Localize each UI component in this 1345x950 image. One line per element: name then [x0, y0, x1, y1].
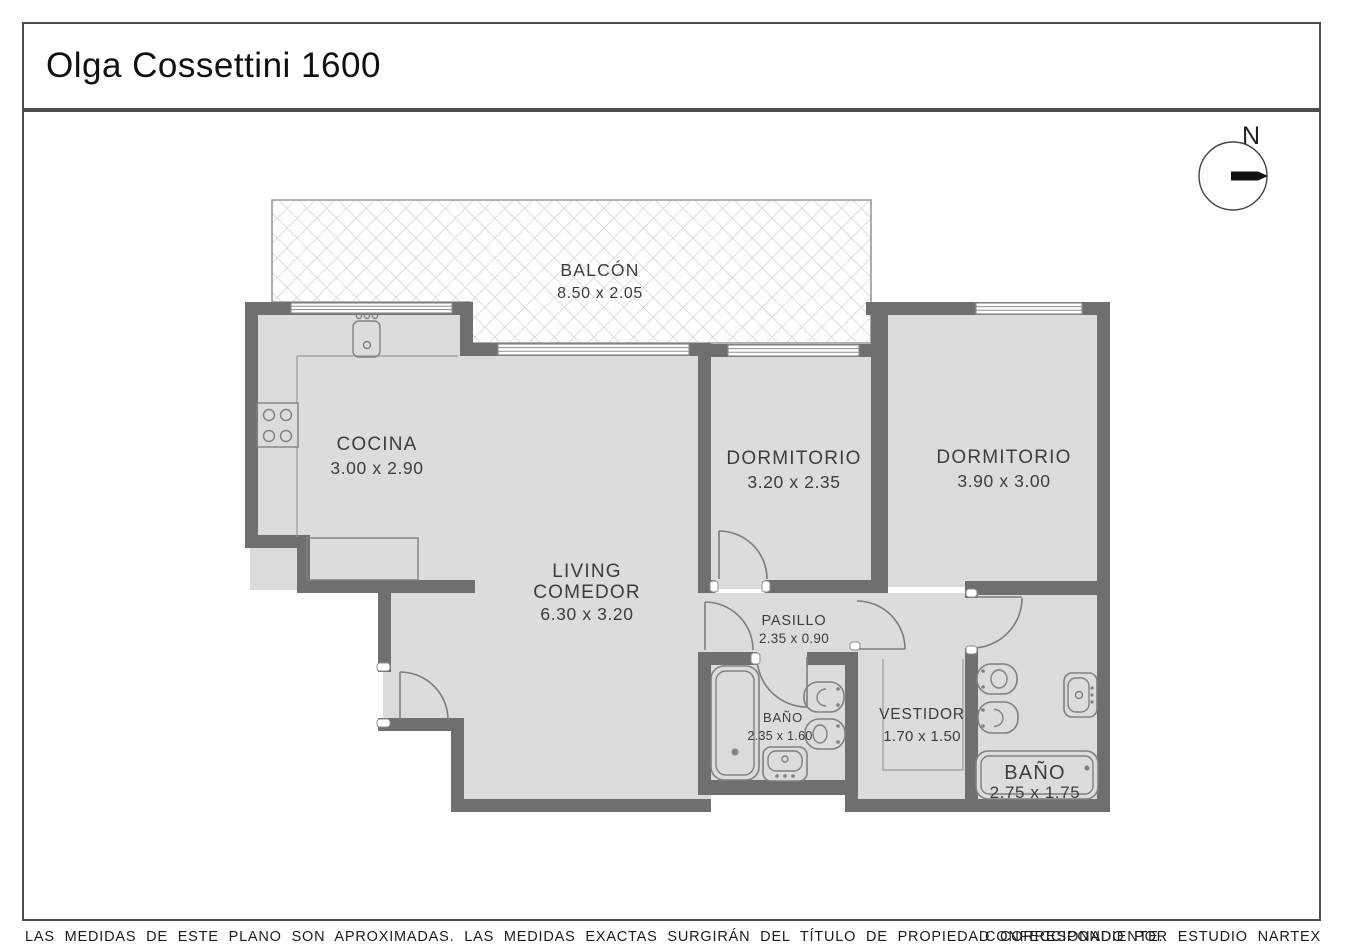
toilet — [978, 702, 1018, 733]
svg-text:DORMITORIO: DORMITORIO — [726, 448, 861, 469]
svg-text:2.35 x 1.60: 2.35 x 1.60 — [747, 729, 812, 743]
compass: N — [1199, 122, 1268, 210]
floorplan-page: Olga Cossettini 1600 — [0, 0, 1345, 950]
sink — [763, 747, 807, 781]
svg-text:BAÑO: BAÑO — [1004, 760, 1065, 784]
studio-credit: CONFECCIONADO POR ESTUDIO NARTEX — [985, 929, 1321, 945]
bedroom1-window — [728, 345, 859, 356]
svg-text:VESTIDOR: VESTIDOR — [879, 706, 965, 723]
svg-text:3.20 x 2.35: 3.20 x 2.35 — [747, 472, 840, 492]
compass-north-label: N — [1242, 122, 1260, 150]
svg-text:LIVING: LIVING — [552, 561, 622, 582]
svg-text:1.70 x 1.50: 1.70 x 1.50 — [883, 728, 961, 745]
svg-text:2.35 x 0.90: 2.35 x 0.90 — [759, 631, 829, 646]
svg-text:8.50 x 2.05: 8.50 x 2.05 — [557, 285, 643, 302]
svg-text:BAÑO: BAÑO — [763, 710, 803, 725]
svg-text:6.30 x 3.20: 6.30 x 3.20 — [540, 604, 633, 624]
bedroom2-window — [976, 303, 1082, 314]
svg-text:COMEDOR: COMEDOR — [533, 582, 641, 603]
floorplan-drawing: BALCÓN 8.50 x 2.05 COCINA 3.00 x 2.90 LI… — [0, 0, 1345, 950]
svg-text:DORMITORIO: DORMITORIO — [936, 447, 1071, 468]
bathtub — [711, 666, 759, 780]
svg-text:PASILLO: PASILLO — [762, 613, 827, 629]
svg-text:3.00 x 2.90: 3.00 x 2.90 — [330, 458, 423, 478]
bidet — [977, 664, 1017, 694]
compass-needle-icon — [1231, 172, 1268, 181]
svg-text:2.75 x 1.75: 2.75 x 1.75 — [990, 783, 1081, 802]
living-window — [498, 344, 689, 355]
sink — [1064, 673, 1097, 717]
svg-text:COCINA: COCINA — [336, 434, 417, 455]
toilet — [804, 682, 844, 712]
svg-text:3.90 x 3.00: 3.90 x 3.00 — [957, 471, 1050, 491]
svg-text:BALCÓN: BALCÓN — [560, 259, 639, 280]
kitchen-window — [291, 303, 452, 313]
